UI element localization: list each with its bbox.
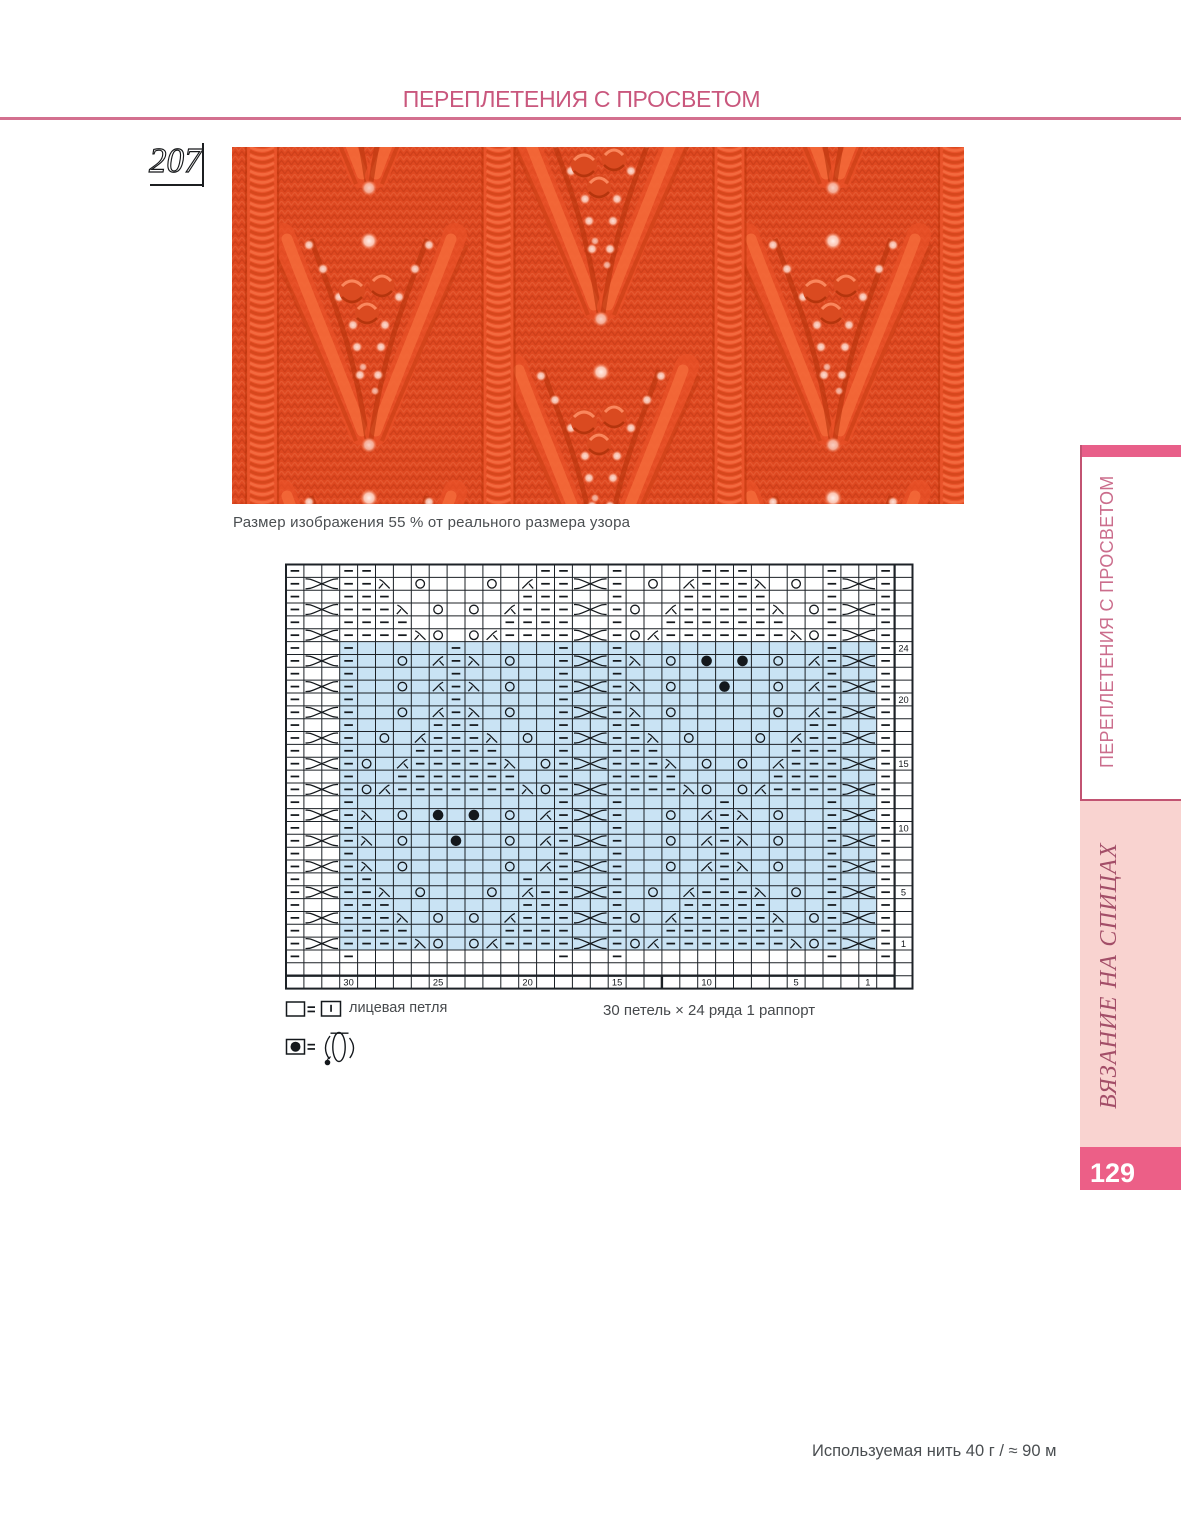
svg-text:15: 15 [612, 978, 622, 988]
svg-text:1: 1 [865, 978, 870, 988]
svg-text:10: 10 [701, 978, 711, 988]
svg-text:20: 20 [522, 978, 532, 988]
svg-text:30: 30 [343, 978, 353, 988]
svg-text:5: 5 [794, 978, 799, 988]
svg-text:20: 20 [898, 695, 908, 705]
svg-text:5: 5 [901, 888, 906, 898]
svg-text:25: 25 [433, 978, 443, 988]
svg-text:24: 24 [898, 643, 908, 653]
svg-text:15: 15 [898, 759, 908, 769]
svg-text:1: 1 [901, 939, 906, 949]
svg-text:10: 10 [898, 823, 908, 833]
